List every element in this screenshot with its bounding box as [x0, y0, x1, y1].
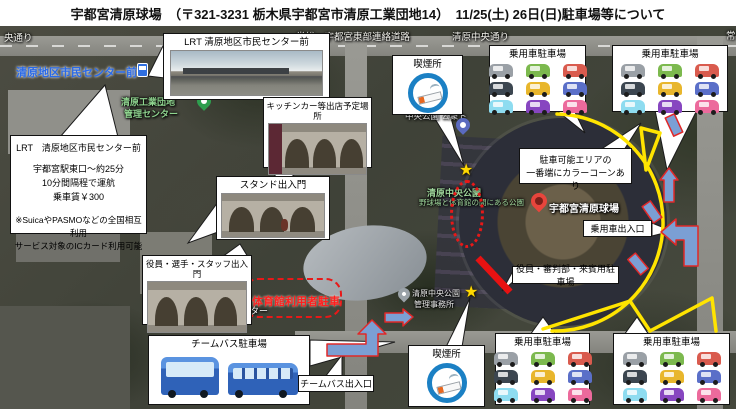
callout-passenger-parking-2: 乗用車駐車場: [612, 45, 728, 112]
route-arrow-right: [385, 309, 413, 326]
bus-stop-label: 清原地区市民センター前: [16, 64, 137, 80]
lrt-info-note-2: サービス対象のICカード利用可能: [14, 240, 143, 253]
car-icon-grid: [613, 61, 727, 116]
car-icon: [658, 64, 682, 77]
car-icon: [563, 64, 587, 77]
callout-car-entrance: 乗用車出入口: [583, 220, 652, 237]
bus-icon: [228, 363, 298, 395]
bus-icon: [161, 357, 219, 395]
arch-shape: [290, 207, 314, 232]
arch-shape: [155, 297, 179, 326]
car-icon: [531, 388, 555, 401]
car-icon: [494, 388, 518, 401]
staff-gate-photo: [147, 281, 247, 333]
cone-note-line-1: 駐車可能エリアの: [522, 153, 629, 166]
car-icon: [660, 388, 684, 401]
car-icon: [494, 370, 518, 383]
arch-shape: [214, 297, 238, 326]
park-office-label-1: 清原中央公園: [412, 288, 460, 299]
callout-staff-gate: 役員・選手・スタッフ出入門: [142, 255, 252, 325]
car-icon: [660, 352, 684, 365]
building-block: [0, 306, 130, 409]
car-icon: [494, 352, 518, 365]
page-title: 宇都宮清原球場 （〒321-3231 栃木県宇都宮市清原工業団地14） 11/2…: [0, 0, 736, 26]
passenger-parking-title: 乗用車駐車場: [613, 46, 727, 61]
car-icon: [489, 64, 513, 77]
callout-team-bus-gate: チームバス出入口: [298, 375, 374, 392]
car-icon-grid: [614, 349, 729, 404]
lrt-info-title: LRT 清原地区市民センター前: [14, 142, 143, 156]
kitchen-car-photo: [268, 123, 367, 175]
pointer-wedge: [325, 355, 342, 377]
park-office-label-2: 管理事務所: [414, 299, 454, 310]
smoking-area-icon: [427, 363, 467, 403]
smoking-star-marker-bottom: ★: [464, 285, 478, 301]
smoking-area-icon: [408, 73, 448, 113]
car-icon: [697, 388, 721, 401]
car-icon: [623, 388, 647, 401]
route-segment: [665, 114, 683, 136]
arch-shape: [340, 139, 363, 168]
bus-stop-icon: [137, 63, 148, 77]
car-icon: [568, 352, 592, 365]
car-icon: [623, 352, 647, 365]
arch-shape: [184, 297, 208, 326]
car-icon: [563, 82, 587, 95]
car-icon: [621, 100, 645, 113]
stand-gate-title: スタンド出入門: [217, 177, 329, 192]
bus-illustration-group: [149, 351, 309, 395]
stadium-name-label: 宇都宮清原球場: [549, 200, 619, 215]
car-icon: [621, 64, 645, 77]
lrt-info-line: 乗車賃￥300: [14, 191, 143, 205]
passenger-parking-title: 乗用車駐車場: [614, 334, 729, 349]
lrt-photo-title: LRT 清原地区市民センター前: [164, 34, 329, 49]
car-icon: [695, 64, 719, 77]
smoking-star-marker-top: ★: [459, 163, 473, 179]
road-vertical-center: [345, 36, 367, 409]
gym-parking-label: 体育館利用者駐車: [252, 293, 340, 309]
photo-red-wall: [269, 124, 282, 174]
car-icon: [531, 352, 555, 365]
passenger-parking-title: 乗用車駐車場: [490, 46, 585, 61]
car-icon: [695, 82, 719, 95]
kitchen-car-title: キッチンカー等出店予定場所: [264, 98, 371, 122]
callout-smoking-bottom: 喫煙所: [408, 345, 485, 407]
car-icon: [621, 82, 645, 95]
smoking-title: 喫煙所: [393, 56, 462, 71]
car-icon: [695, 100, 719, 113]
callout-lrt-photo: LRT 清原地区市民センター前: [163, 33, 330, 100]
road-label-kiyohara-chuo: 清原中央通り: [452, 29, 509, 43]
car-icon: [489, 82, 513, 95]
callout-lrt-info: LRT 清原地区市民センター前 宇都宮駅東口～約25分 10分間隔程で運航 乗車…: [10, 135, 147, 234]
car-icon: [526, 82, 550, 95]
car-icon: [660, 370, 684, 383]
car-icon: [697, 370, 721, 383]
car-icon: [526, 100, 550, 113]
staff-gate-title: 役員・選手・スタッフ出入門: [143, 256, 251, 280]
car-icon: [623, 370, 647, 383]
arch-shape: [229, 207, 253, 232]
car-icon: [658, 82, 682, 95]
road-label-partial-left: 央通り: [4, 30, 33, 44]
car-icon: [697, 352, 721, 365]
pointer-wedge: [655, 110, 697, 170]
lrt-info-line: 10分間隔程で運航: [14, 177, 143, 191]
car-icon-grid: [496, 349, 589, 404]
person-figure: [281, 219, 288, 231]
car-icon: [489, 100, 513, 113]
callout-cone-note: 駐車可能エリアの 一番端にカラーコーンあり: [519, 148, 632, 184]
callout-passenger-parking-4: 乗用車駐車場: [613, 333, 730, 405]
kitchen-car-area-outline: [450, 180, 484, 248]
car-icon-grid: [490, 61, 585, 116]
arch-shape: [313, 139, 336, 168]
arch-shape: [285, 139, 308, 168]
stand-gate-photo: [221, 193, 325, 238]
passenger-parking-title: 乗用車駐車場: [496, 334, 589, 349]
smoking-title: 喫煙所: [409, 346, 484, 361]
road-label-partial-right: 常: [726, 28, 736, 42]
car-icon: [658, 100, 682, 113]
team-bus-parking-title: チームバス駐車場: [149, 336, 309, 351]
car-icon: [568, 370, 592, 383]
car-icon: [526, 64, 550, 77]
industrial-center-label-2: 管理センター: [124, 107, 178, 120]
lrt-info-note-1: ※SuicaやPASMOなどの全国相互利用: [14, 214, 143, 240]
callout-smoking-top: 喫煙所: [392, 55, 463, 115]
car-icon: [568, 388, 592, 401]
annotated-parking-map: 宇都宮清原球場 （〒321-3231 栃木県宇都宮市清原工業団地14） 11/2…: [0, 0, 736, 409]
callout-passenger-parking-3: 乗用車駐車場: [495, 333, 590, 405]
callout-passenger-parking-1: 乗用車駐車場: [489, 45, 586, 112]
car-icon: [563, 100, 587, 113]
lrt-info-line: 宇都宮駅東口～約25分: [14, 163, 143, 177]
car-icon: [531, 370, 555, 383]
satellite-map: 央通り 常総・宇都宮東部連絡道路 清原中央通り 常 清原地区市民センター前 清原…: [0, 26, 736, 409]
callout-kitchen-car: キッチンカー等出店予定場所: [263, 97, 372, 168]
cone-note-line-2: 一番端にカラーコーンあり: [522, 166, 629, 192]
callout-vip-parking: 役員・審判部・来賓用駐車場: [512, 266, 619, 284]
callout-stand-gate: スタンド出入門: [216, 176, 330, 240]
lrt-station-photo: [170, 50, 323, 96]
callout-team-bus-parking: チームバス駐車場: [148, 335, 310, 405]
